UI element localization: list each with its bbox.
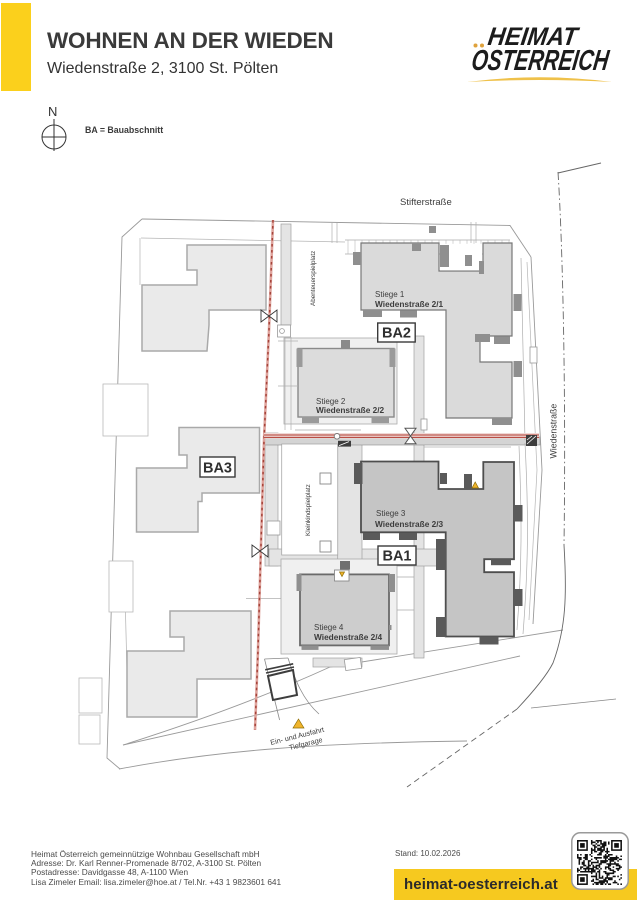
svg-text:Kleinkindspielplatz: Kleinkindspielplatz [305,484,312,536]
svg-text:BA = Bauabschnitt: BA = Bauabschnitt [85,125,163,135]
svg-text:Wiedenstraße 2/1: Wiedenstraße 2/1 [375,299,444,309]
svg-text:N: N [48,104,57,119]
svg-text:BA2: BA2 [382,326,411,342]
svg-text:OSTERREICH: OSTERREICH [470,45,612,77]
svg-text:BA3: BA3 [203,461,232,477]
svg-text:Stiege 1: Stiege 1 [375,290,405,299]
svg-text:Wiedenstraße: Wiedenstraße [549,404,559,459]
svg-text:Stifterstraße: Stifterstraße [400,197,452,208]
svg-text:BA1: BA1 [382,549,411,565]
svg-text:Wiedenstraße 2/3: Wiedenstraße 2/3 [375,519,444,529]
svg-text:Abenteuerspielplatz: Abenteuerspielplatz [310,251,317,306]
svg-text:Stiege 3: Stiege 3 [376,509,406,518]
svg-text:Stiege 4: Stiege 4 [314,623,344,632]
svg-text:Wiedenstraße 2/2: Wiedenstraße 2/2 [316,405,385,415]
svg-text:Wiedenstraße 2/4: Wiedenstraße 2/4 [314,632,383,642]
